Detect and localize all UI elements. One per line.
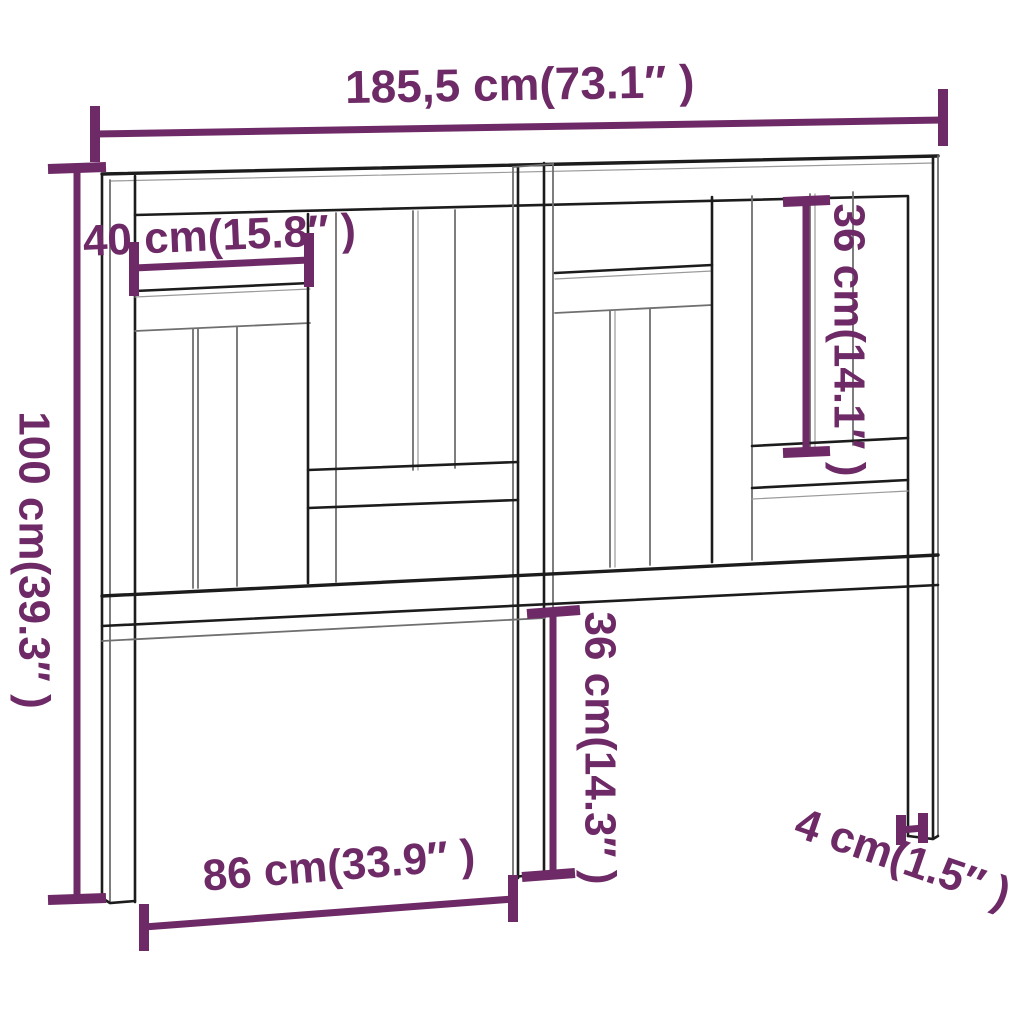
dimension-lower-width: 86 cm(33.9″ ) <box>144 830 513 951</box>
dimension-center-lower-height: 36 cm(14.3″ ) <box>522 610 625 885</box>
diagram-canvas: 185,5 cm(73.1″ ) 40 cm(15.8″ ) 100 cm(39… <box>0 0 1024 1024</box>
dimension-leg-thickness: 4 cm(1.5″ ) <box>789 799 1017 918</box>
top-rail <box>102 156 938 215</box>
dimension-line <box>901 828 923 830</box>
dimension-cap-bottom <box>783 451 830 453</box>
dimension-cap-top <box>527 610 580 614</box>
dimension-cap-bottom <box>522 873 575 877</box>
dimension-label: 40 cm(15.8″ ) <box>82 205 357 266</box>
dimension-line <box>144 899 513 927</box>
dimension-label: 36 cm(14.3″ ) <box>576 611 625 884</box>
dimension-total-width: 185,5 cm(73.1″ ) <box>95 55 943 162</box>
top-rail-top-edge <box>102 156 938 174</box>
dimension-label: 185,5 cm(73.1″ ) <box>345 55 695 113</box>
right-leg <box>908 156 938 839</box>
headboard-line-drawing <box>102 156 938 903</box>
dimension-upper-board-width: 40 cm(15.8″ ) <box>82 205 357 296</box>
board-edge <box>555 305 712 313</box>
dimension-total-height: 100 cm(39.3″ ) <box>10 167 107 900</box>
dimension-cap-top <box>48 167 106 169</box>
mid-rail-bottom-edge <box>752 480 908 488</box>
board-edge <box>135 323 310 331</box>
dimension-cap-top <box>783 200 830 202</box>
dimension-line <box>95 120 943 134</box>
headboard-dimension-diagram: 185,5 cm(73.1″ ) 40 cm(15.8″ ) 100 cm(39… <box>0 0 1024 1024</box>
dimension-label: 100 cm(39.3″ ) <box>10 411 59 708</box>
left-leg-bottom-edge <box>102 898 135 903</box>
bottom-rail <box>102 555 938 641</box>
center-post <box>513 163 553 878</box>
dimension-right-panel-height: 36 cm(14.1″ ) <box>783 200 874 477</box>
dimension-cap-bottom <box>48 898 106 900</box>
dimension-label: 86 cm(33.9″ ) <box>201 830 477 900</box>
mid-rail-bottom-edge <box>308 500 518 508</box>
dimension-label: 36 cm(14.1″ ) <box>825 203 874 476</box>
mid-rail-underside-edge <box>752 491 908 499</box>
